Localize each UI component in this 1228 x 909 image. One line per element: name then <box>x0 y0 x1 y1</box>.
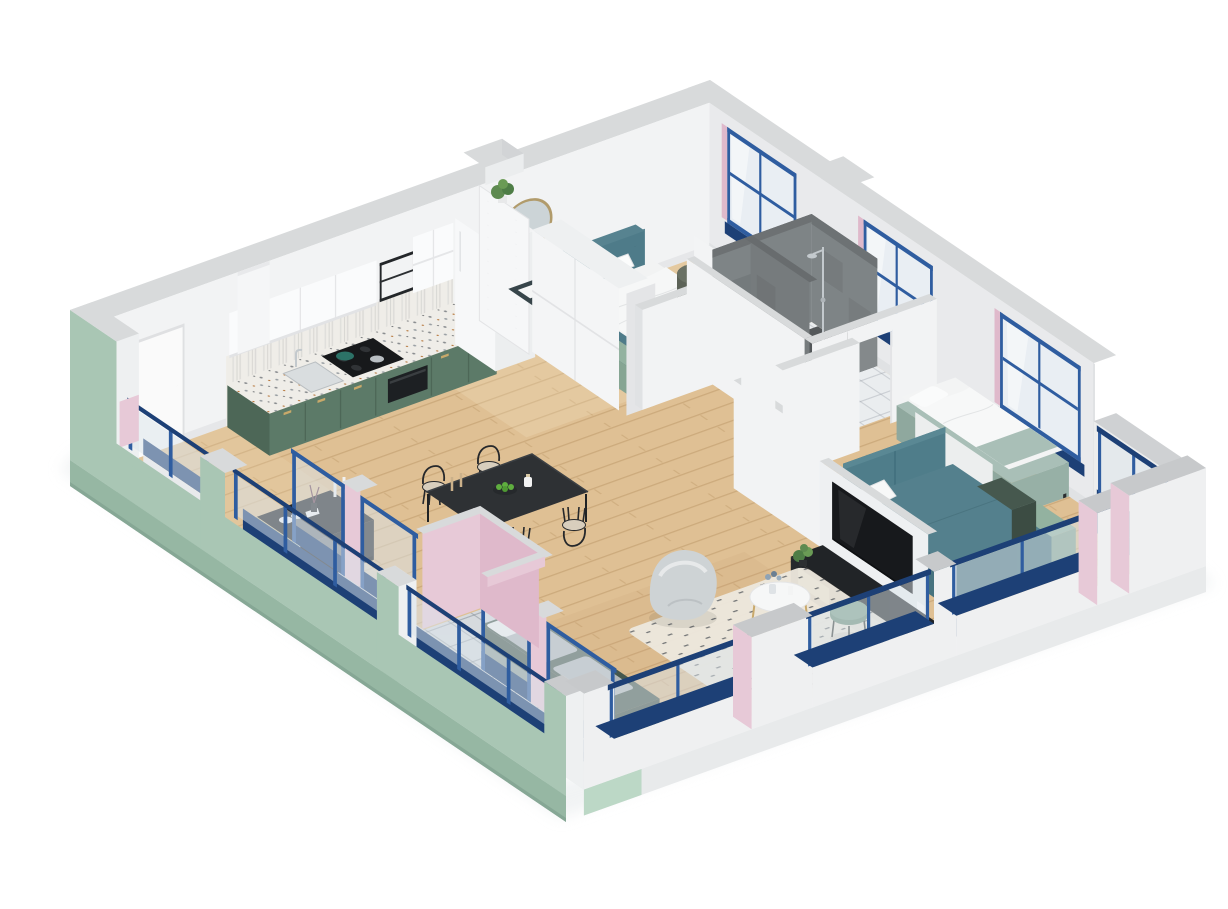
pot <box>370 356 384 363</box>
range-hood <box>238 261 270 355</box>
pan <box>336 352 354 361</box>
bean-bag <box>649 550 717 628</box>
bedroom2-screen-panel <box>741 342 775 473</box>
candle <box>788 586 793 595</box>
floor-plan-render <box>0 0 1228 909</box>
isometric-scene <box>0 0 1228 909</box>
